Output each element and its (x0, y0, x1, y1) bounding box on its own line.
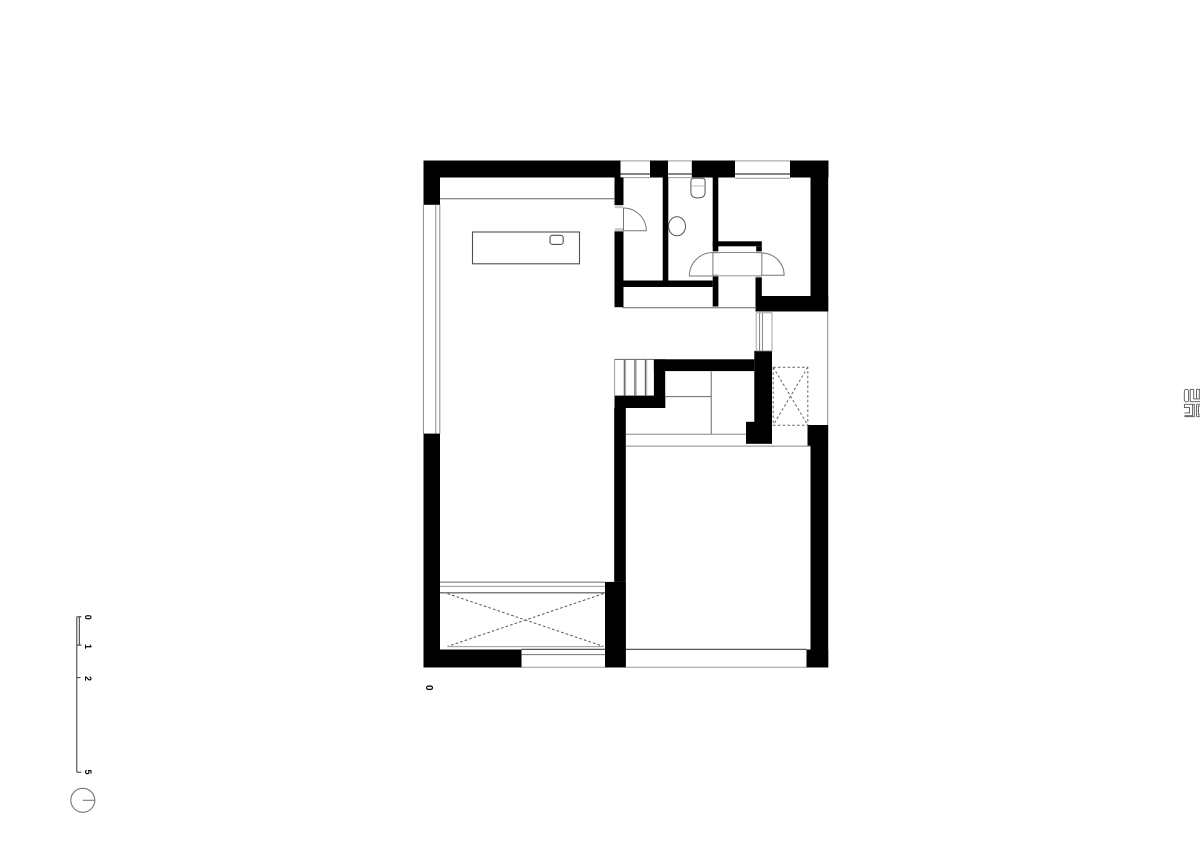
svg-text:2: 2 (83, 676, 93, 681)
svg-text:1: 1 (83, 644, 93, 649)
svg-text:0: 0 (423, 685, 434, 691)
svg-text:0: 0 (83, 615, 93, 620)
svg-text:5: 5 (83, 770, 93, 775)
